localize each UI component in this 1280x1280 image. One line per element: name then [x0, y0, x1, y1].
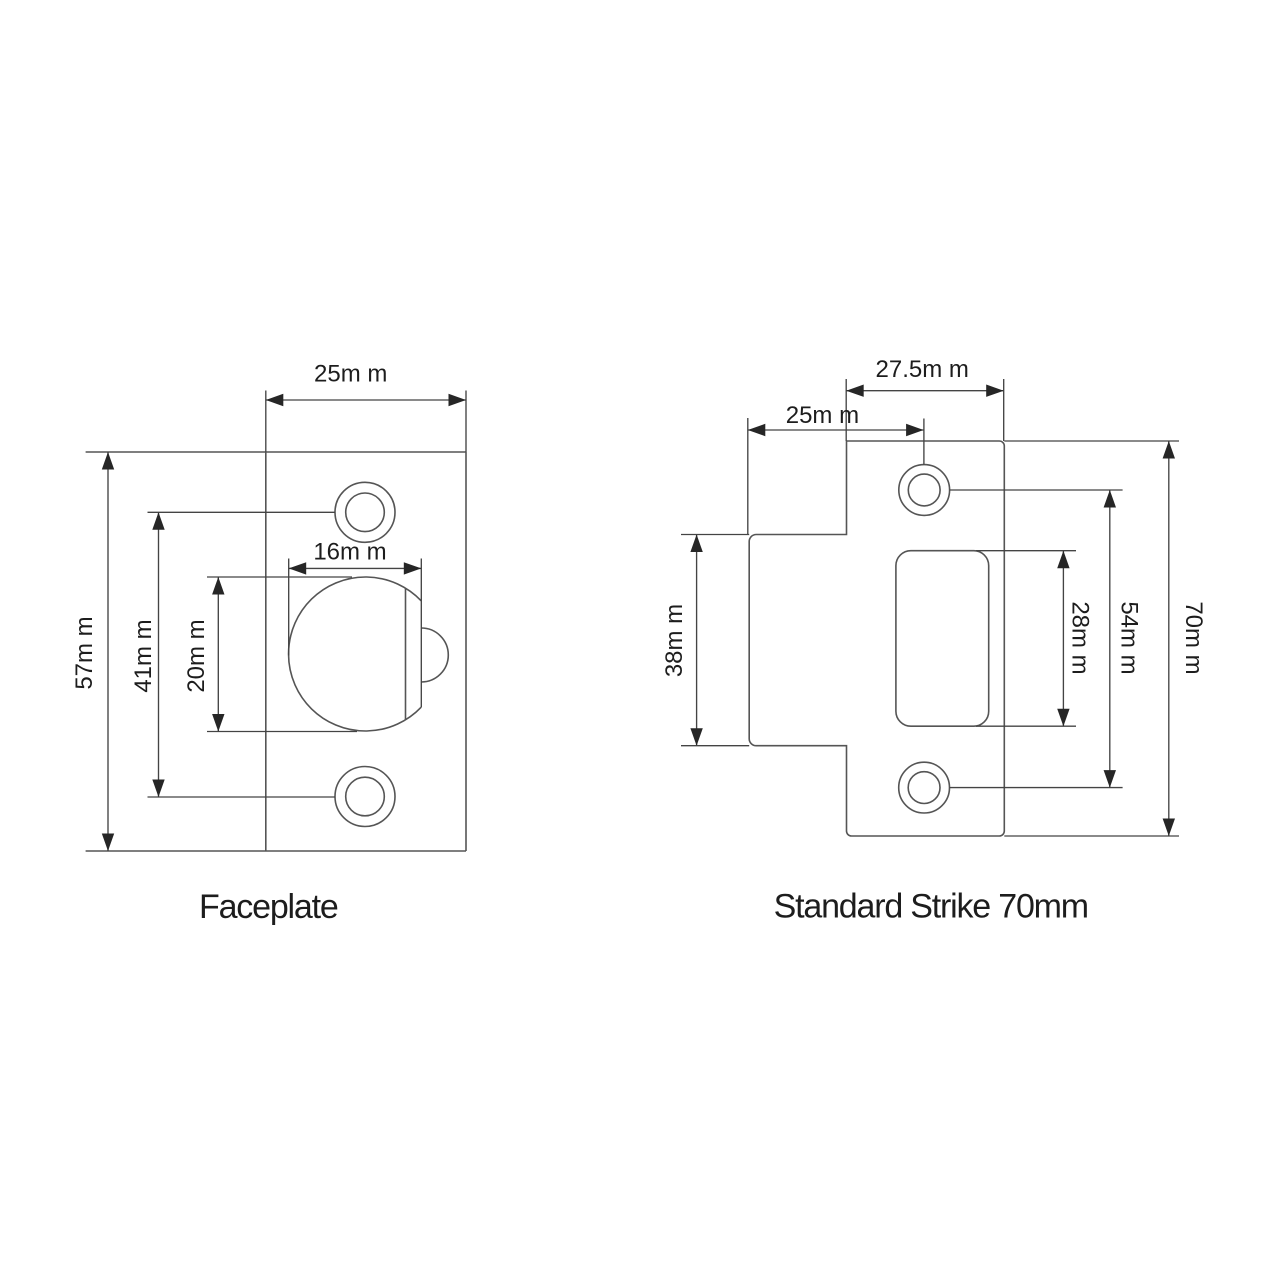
svg-text:27.5m m: 27.5m m — [876, 356, 969, 383]
svg-text:28m m: 28m m — [1067, 601, 1094, 674]
svg-text:41m m: 41m m — [130, 619, 157, 692]
svg-text:54m m: 54m m — [1116, 601, 1143, 674]
svg-text:38m m: 38m m — [661, 604, 688, 677]
svg-text:16m m: 16m m — [313, 539, 386, 566]
svg-text:25m m: 25m m — [786, 402, 859, 429]
svg-text:57m m: 57m m — [71, 616, 98, 689]
svg-text:Standard Strike 70mm: Standard Strike 70mm — [774, 888, 1088, 926]
svg-text:25m m: 25m m — [314, 361, 387, 388]
svg-text:70m m: 70m m — [1180, 601, 1207, 674]
svg-text:Faceplate: Faceplate — [199, 888, 338, 926]
svg-text:20m m: 20m m — [183, 619, 210, 692]
